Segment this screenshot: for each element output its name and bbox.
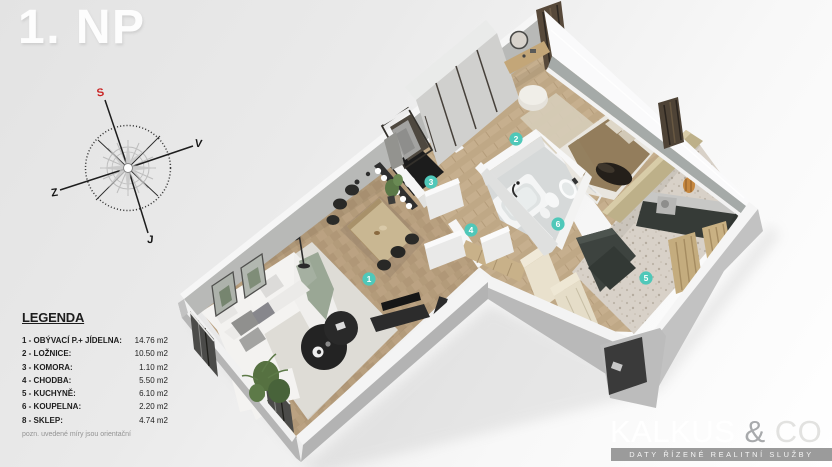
- svg-text:5: 5: [644, 273, 649, 283]
- svg-text:4: 4: [469, 225, 474, 235]
- svg-text:3: 3: [429, 177, 434, 187]
- svg-text:V: V: [194, 138, 204, 151]
- svg-text:2: 2: [514, 134, 519, 144]
- svg-text:J: J: [147, 234, 154, 246]
- svg-text:6: 6: [556, 219, 561, 229]
- svg-text:1: 1: [367, 274, 372, 284]
- svg-text:Z: Z: [50, 187, 59, 200]
- svg-text:S: S: [96, 86, 105, 99]
